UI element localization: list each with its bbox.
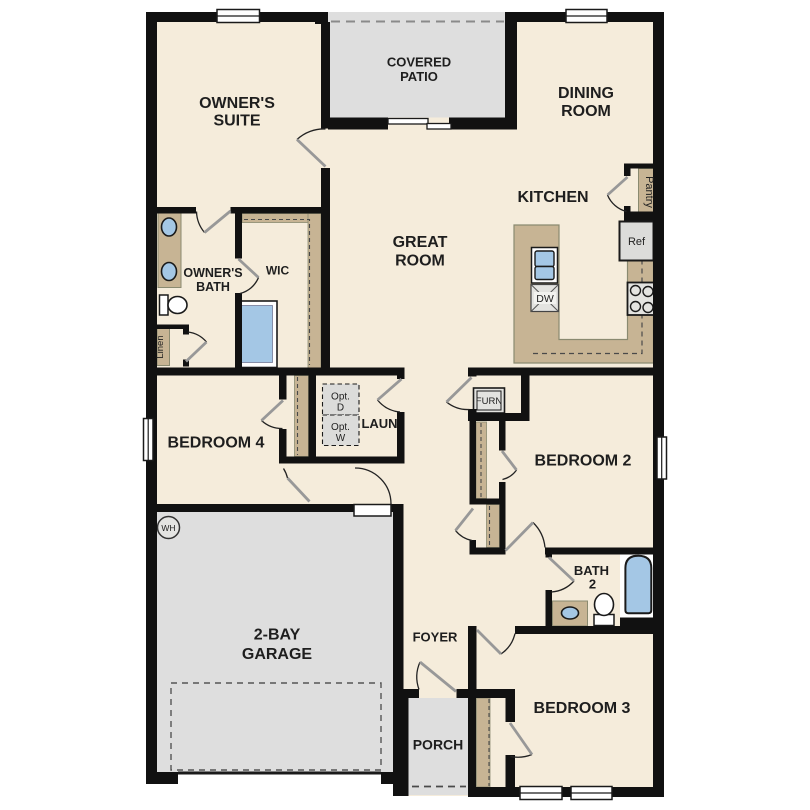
svg-text:Pantry: Pantry — [643, 176, 655, 208]
svg-text:DW: DW — [536, 293, 554, 305]
svg-text:BEDROOM 2: BEDROOM 2 — [535, 453, 632, 470]
svg-text:2: 2 — [589, 577, 596, 592]
svg-text:Opt.: Opt. — [331, 392, 350, 403]
svg-text:LAUN: LAUN — [361, 416, 397, 431]
svg-text:BATH: BATH — [196, 280, 230, 294]
svg-text:ROOM: ROOM — [395, 253, 445, 270]
svg-text:BEDROOM 4: BEDROOM 4 — [168, 435, 265, 452]
svg-text:BEDROOM 3: BEDROOM 3 — [534, 700, 631, 717]
svg-text:FURN: FURN — [476, 396, 503, 407]
svg-text:OWNER'S: OWNER'S — [183, 266, 242, 280]
svg-text:PATIO: PATIO — [400, 69, 438, 84]
svg-text:WH: WH — [161, 523, 175, 533]
svg-text:COVERED: COVERED — [387, 55, 451, 70]
svg-text:Ref: Ref — [628, 236, 646, 248]
svg-text:Linen: Linen — [155, 335, 166, 358]
svg-text:KITCHEN: KITCHEN — [517, 189, 588, 206]
svg-text:WIC: WIC — [266, 264, 290, 278]
svg-text:GARAGE: GARAGE — [242, 646, 313, 663]
svg-text:2-BAY: 2-BAY — [254, 627, 301, 644]
svg-text:OWNER'S: OWNER'S — [199, 95, 275, 112]
svg-text:GREAT: GREAT — [393, 234, 448, 251]
svg-text:ROOM: ROOM — [561, 103, 611, 120]
svg-text:FOYER: FOYER — [413, 630, 458, 645]
svg-text:W: W — [336, 433, 346, 444]
svg-text:Opt.: Opt. — [331, 422, 350, 433]
svg-text:PORCH: PORCH — [413, 737, 464, 753]
svg-text:SUITE: SUITE — [213, 113, 260, 130]
svg-text:D: D — [337, 403, 344, 414]
svg-text:DINING: DINING — [558, 85, 614, 102]
